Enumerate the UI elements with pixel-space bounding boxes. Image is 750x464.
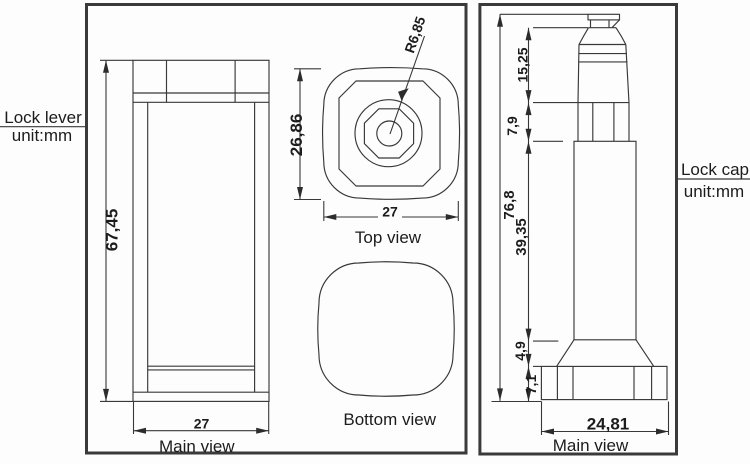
svg-text:Main view: Main view [159,437,235,456]
svg-text:27: 27 [194,416,210,432]
svg-text:Main view: Main view [553,436,629,455]
svg-text:unit:mm: unit:mm [12,126,72,145]
svg-text:67,45: 67,45 [103,209,122,252]
svg-text:24,81: 24,81 [587,415,630,434]
svg-text:26,86: 26,86 [287,114,306,157]
svg-text:4,9: 4,9 [512,341,528,361]
svg-text:15,25: 15,25 [515,47,531,82]
svg-text:27: 27 [382,204,398,220]
svg-text:Bottom view: Bottom view [343,410,436,429]
svg-text:Lock cap: Lock cap [681,160,749,179]
svg-text:Lock lever: Lock lever [4,108,82,127]
svg-text:76,8: 76,8 [501,190,518,219]
svg-text:Top view: Top view [355,228,422,247]
svg-text:39,35: 39,35 [513,218,530,256]
svg-text:7,1: 7,1 [523,375,539,395]
svg-text:unit:mm: unit:mm [684,182,744,201]
svg-text:7,9: 7,9 [504,116,520,136]
